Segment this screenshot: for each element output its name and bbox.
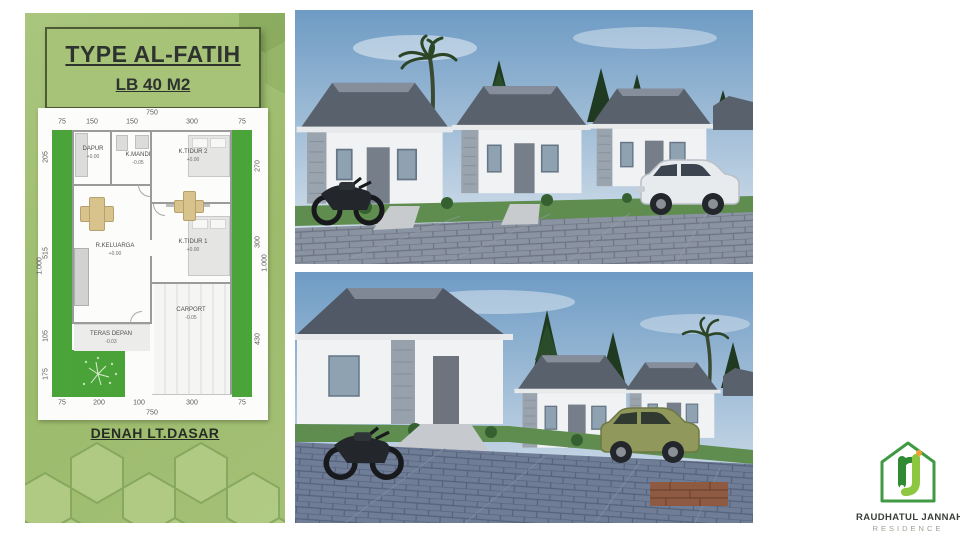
building-area: LB 40 M2 <box>116 75 191 95</box>
floor-plan: 750 75 150 150 300 75 75 200 100 300 75 … <box>38 108 268 420</box>
dim-label: 300 <box>186 400 198 407</box>
room-label-rkeluarga: R.KELUARGA+0.00 <box>96 243 135 257</box>
front-garden <box>72 350 125 397</box>
door-arc <box>130 311 142 323</box>
wall <box>110 130 112 184</box>
toilet <box>116 135 128 151</box>
wall <box>150 256 152 324</box>
dim-label: 205 <box>43 151 50 163</box>
dim-left-total: 1.000 <box>37 257 44 275</box>
carport-edge <box>152 394 232 395</box>
brand-tagline: RESIDENCE <box>856 524 960 533</box>
room-label-teras: TERAS DEPAN-0.03 <box>90 331 132 345</box>
room-label-ktidur1: K.TIDUR 1+0.00 <box>178 239 207 253</box>
render-photo-top <box>295 10 753 264</box>
wall <box>72 130 232 132</box>
dim-label: 75 <box>58 400 66 407</box>
wall <box>230 130 232 395</box>
dim-label: 300 <box>255 236 262 248</box>
dim-label: 430 <box>255 333 262 345</box>
dim-label: 75 <box>238 400 246 407</box>
dim-label: 150 <box>86 119 98 126</box>
dim-label: 105 <box>43 330 50 342</box>
side-yard-left <box>52 130 72 397</box>
brick-planter <box>650 482 728 506</box>
dim-label: 270 <box>255 160 262 172</box>
dim-label: 75 <box>238 119 246 126</box>
dim-label: 150 <box>126 119 138 126</box>
wall <box>150 130 152 240</box>
dim-top-total: 750 <box>146 110 158 117</box>
dim-right-total: 1.000 <box>262 254 269 272</box>
dim-label: 300 <box>186 119 198 126</box>
flyer-page: TYPE AL-FATIH LB 40 M2 750 75 150 150 30… <box>0 0 960 540</box>
door-arc <box>138 185 150 197</box>
room-label-ktidur2: K.TIDUR 2+0.00 <box>178 149 207 163</box>
house-logo-icon <box>879 440 937 504</box>
render-photo-bottom <box>295 272 753 523</box>
carport-slab <box>154 284 230 395</box>
brand-logo: RAUDHATUL JANNAH RESIDENCE <box>856 440 960 533</box>
dining-table <box>183 191 196 221</box>
tree-symbol <box>72 350 125 397</box>
room-label-dapur: DAPUR+0.00 <box>82 146 103 160</box>
dim-label: 175 <box>43 368 50 380</box>
room-label-carport: CARPORT-0.05 <box>176 307 205 321</box>
room-label-kmandi: K.MANDI-0.05 <box>125 152 150 166</box>
coffee-table <box>89 197 105 231</box>
side-yard-right <box>232 130 252 397</box>
house-render-scene <box>295 272 753 523</box>
dim-label: 100 <box>133 400 145 407</box>
title-box: TYPE AL-FATIH LB 40 M2 <box>45 27 261 109</box>
house-render-scene <box>295 10 753 264</box>
dim-label: 75 <box>58 119 66 126</box>
brand-name: RAUDHATUL JANNAH <box>856 512 960 523</box>
shower <box>135 135 149 149</box>
sofa <box>74 248 89 306</box>
dim-label: 200 <box>93 400 105 407</box>
left-panel: TYPE AL-FATIH LB 40 M2 750 75 150 150 30… <box>25 13 285 523</box>
wall <box>152 282 230 284</box>
door-arc <box>153 204 165 216</box>
dim-bottom-total: 750 <box>146 410 158 417</box>
dim-label: 515 <box>43 247 50 259</box>
type-title: TYPE AL-FATIH <box>65 41 240 68</box>
plan-caption: DENAH LT.DASAR <box>25 425 285 441</box>
